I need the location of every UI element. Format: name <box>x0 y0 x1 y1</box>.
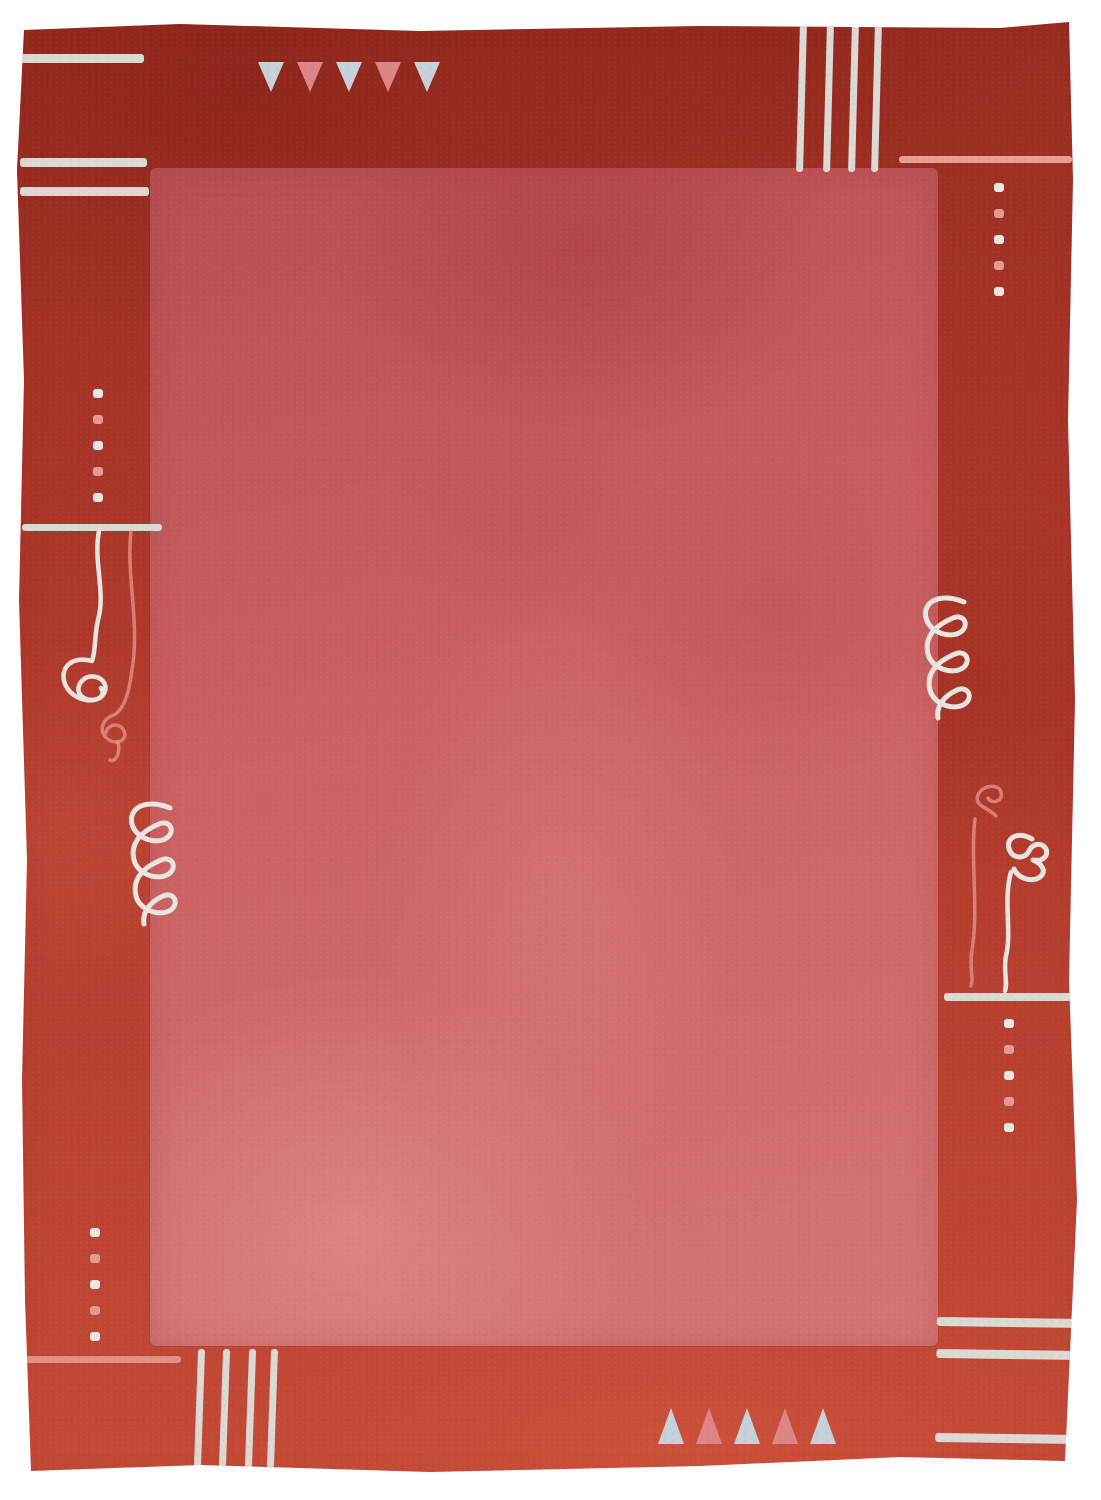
right-pink-stem <box>971 819 975 986</box>
left-pink-squiggle <box>102 532 134 742</box>
right-white-stem <box>1005 872 1011 991</box>
right-white-knot <box>1009 835 1047 879</box>
embroidery-scribbles <box>0 0 1101 1500</box>
left-loop-coil <box>131 804 175 924</box>
photo-canvas <box>0 0 1101 1500</box>
rug-photo <box>0 0 1101 1500</box>
right-pink-flower <box>977 786 1001 816</box>
right-loop-coil <box>925 598 969 718</box>
left-white-squiggle <box>64 531 106 700</box>
left-pink-squiggle-tail <box>110 742 119 761</box>
